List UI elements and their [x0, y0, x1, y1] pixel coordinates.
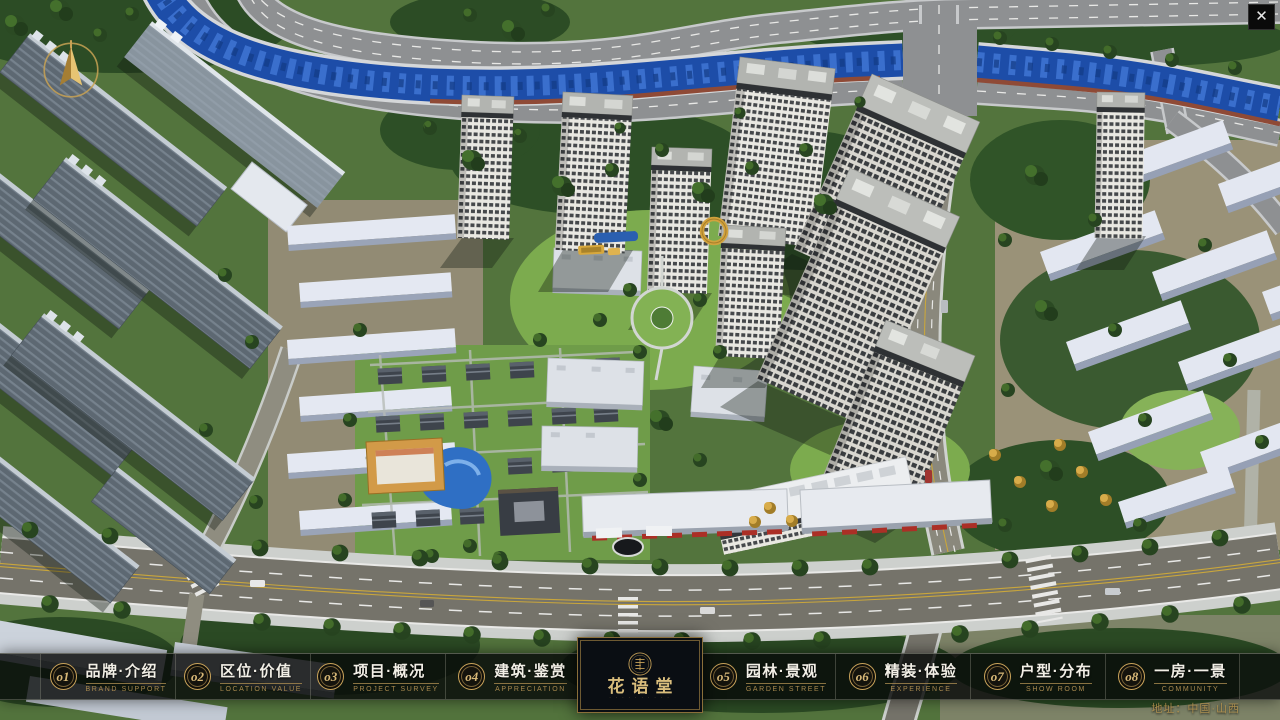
nav-item-views[interactable]: o8 一房·一景 COMMUNITY	[1105, 654, 1240, 699]
nav-label-en: LOCATION VALUE	[220, 683, 302, 693]
site-plan-3d-view[interactable]	[0, 0, 1280, 720]
compass-north-icon	[36, 34, 106, 104]
brand-name: 花语堂	[601, 678, 680, 695]
brand-logo-panel[interactable]: 花语堂 · · · · · · · · · ·	[577, 637, 703, 713]
kindergarten	[366, 438, 445, 494]
entrance-plaza	[613, 538, 643, 556]
close-button[interactable]: ✕	[1248, 4, 1275, 30]
nav-label-en: COMMUNITY	[1154, 683, 1227, 693]
compass-control[interactable]	[36, 34, 106, 104]
project-address: 地址：中国·山西	[1151, 700, 1240, 716]
brand-tagline: · · · · · · · · · ·	[609, 696, 670, 700]
nav-label-zh: 精装·体验	[885, 660, 958, 681]
nav-badge: o1	[50, 663, 77, 690]
pavilion	[498, 487, 560, 536]
nav-label-zh: 户型·分布	[1020, 660, 1093, 681]
nav-badge: o7	[984, 663, 1011, 690]
nav-label-en: PROJECT SURVEY	[353, 683, 439, 693]
close-icon: ✕	[1255, 8, 1268, 25]
nav-item-project[interactable]: o3 项目·概况 PROJECT SURVEY	[310, 654, 445, 699]
nav-label-zh: 园林·景观	[746, 660, 826, 681]
nav-item-brand[interactable]: o1 品牌·介绍 BRAND SUPPORT	[40, 654, 175, 699]
nav-badge: o4	[458, 663, 485, 690]
nav-item-architecture[interactable]: o4 建筑·鉴赏 APPRECIATION	[445, 654, 580, 699]
nav-badge: o5	[710, 663, 737, 690]
nav-label-en: SHOW ROOM	[1020, 683, 1093, 693]
nav-label-zh: 项目·概况	[353, 660, 439, 681]
nav-label-zh: 建筑·鉴赏	[494, 660, 567, 681]
nav-label-en: EXPERIENCE	[885, 683, 958, 693]
nav-badge: o8	[1118, 663, 1145, 690]
nav-label-zh: 一房·一景	[1154, 660, 1227, 681]
nav-label-en: BRAND SUPPORT	[86, 683, 167, 693]
nav-label-en: APPRECIATION	[494, 683, 567, 693]
brand-seal-icon	[627, 651, 653, 677]
nav-label-zh: 品牌·介绍	[86, 660, 167, 681]
nav-item-floorplan[interactable]: o7 户型·分布 SHOW ROOM	[970, 654, 1105, 699]
nav-badge: o2	[184, 663, 211, 690]
nav-item-interior[interactable]: o6 精装·体验 EXPERIENCE	[835, 654, 970, 699]
nav-label-zh: 区位·价值	[220, 660, 302, 681]
nav-badge: o6	[849, 663, 876, 690]
nav-item-location[interactable]: o2 区位·价值 LOCATION VALUE	[175, 654, 310, 699]
nav-label-en: GARDEN STREET	[746, 683, 826, 693]
nav-badge: o3	[317, 663, 344, 690]
presentation-root: ✕ o1 品牌·介绍 BRAND SUPPORT o2 区位·价值 LOCATI…	[0, 0, 1280, 720]
nav-item-garden[interactable]: o5 园林·景观 GARDEN STREET	[700, 654, 835, 699]
